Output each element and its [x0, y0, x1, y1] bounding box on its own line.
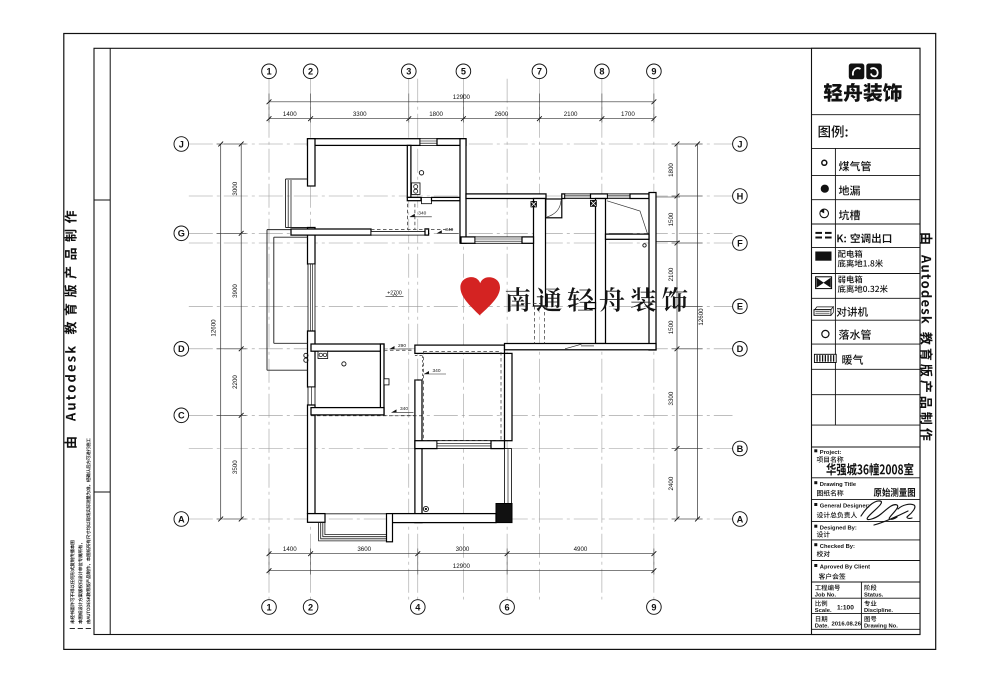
- svg-text:G: G: [178, 229, 185, 239]
- svg-text:3300: 3300: [353, 111, 367, 118]
- svg-text:B: B: [737, 444, 744, 454]
- svg-text:H: H: [737, 191, 744, 201]
- svg-text:Project:: Project:: [820, 450, 842, 456]
- svg-text:J: J: [737, 139, 742, 149]
- svg-text:D: D: [737, 344, 744, 354]
- svg-text:Drawing Title: Drawing Title: [820, 482, 857, 488]
- svg-text:3900: 3900: [232, 284, 239, 298]
- svg-text:A: A: [737, 514, 744, 524]
- svg-text:Designed By:: Designed By:: [820, 525, 857, 531]
- svg-text:Job No.: Job No.: [815, 592, 837, 598]
- svg-text:9: 9: [651, 602, 656, 612]
- svg-text:8: 8: [599, 67, 604, 77]
- svg-text:12600: 12600: [211, 319, 218, 337]
- svg-text:1: 1: [266, 67, 271, 77]
- svg-text:Date.: Date.: [815, 624, 830, 630]
- svg-text:E: E: [737, 302, 743, 312]
- svg-text:340: 340: [400, 406, 408, 412]
- svg-text:Status.: Status.: [864, 592, 884, 598]
- svg-text:1: 1: [266, 602, 271, 612]
- svg-text:3: 3: [406, 67, 411, 77]
- svg-text:4: 4: [415, 602, 421, 612]
- svg-text:7: 7: [537, 67, 542, 77]
- svg-text:12600: 12600: [698, 308, 705, 326]
- svg-text:Checked By:: Checked By:: [820, 544, 855, 550]
- svg-text:9: 9: [651, 67, 656, 77]
- svg-text:C: C: [178, 411, 185, 421]
- svg-text:2100: 2100: [668, 267, 675, 281]
- svg-text:2600: 2600: [495, 111, 509, 118]
- svg-text:290: 290: [398, 343, 406, 349]
- svg-text:340: 340: [432, 368, 440, 374]
- svg-text:Drawing No.: Drawing No.: [864, 624, 898, 630]
- svg-text:340: 340: [445, 227, 453, 233]
- svg-text:2400: 2400: [668, 476, 675, 490]
- svg-text:1700: 1700: [621, 111, 635, 118]
- svg-text:2200: 2200: [232, 375, 239, 389]
- svg-text:Aproved By Client: Aproved By Client: [820, 565, 870, 571]
- svg-text:2: 2: [308, 602, 313, 612]
- svg-text:3000: 3000: [232, 181, 239, 195]
- svg-text:2100: 2100: [564, 111, 578, 118]
- svg-text:2: 2: [308, 67, 313, 77]
- svg-text:5: 5: [461, 67, 466, 77]
- svg-text:1:100: 1:100: [837, 605, 854, 612]
- svg-text:Discipline.: Discipline.: [864, 608, 893, 614]
- svg-text:Scale.: Scale.: [815, 608, 832, 614]
- svg-text:1800: 1800: [429, 111, 443, 118]
- svg-text:A: A: [178, 514, 185, 524]
- svg-text:2016.08.26: 2016.08.26: [832, 621, 862, 627]
- svg-text:1800: 1800: [668, 163, 675, 177]
- svg-text:3300: 3300: [668, 391, 675, 405]
- svg-text:1500: 1500: [668, 320, 675, 334]
- svg-text:1400: 1400: [283, 111, 297, 118]
- svg-text:3600: 3600: [357, 546, 371, 553]
- svg-text:4900: 4900: [574, 546, 588, 553]
- svg-text:3000: 3000: [456, 546, 470, 553]
- svg-text:12900: 12900: [453, 563, 471, 570]
- svg-text:General Designer:: General Designer:: [820, 504, 870, 510]
- svg-text:1500: 1500: [668, 212, 675, 226]
- svg-text:3500: 3500: [232, 460, 239, 474]
- svg-text:12900: 12900: [453, 94, 471, 101]
- svg-text:1400: 1400: [283, 546, 297, 553]
- svg-text:F: F: [737, 238, 743, 248]
- svg-text:340: 340: [418, 211, 426, 217]
- svg-text:J: J: [179, 139, 184, 149]
- svg-text:D: D: [178, 344, 185, 354]
- svg-text:6: 6: [505, 602, 510, 612]
